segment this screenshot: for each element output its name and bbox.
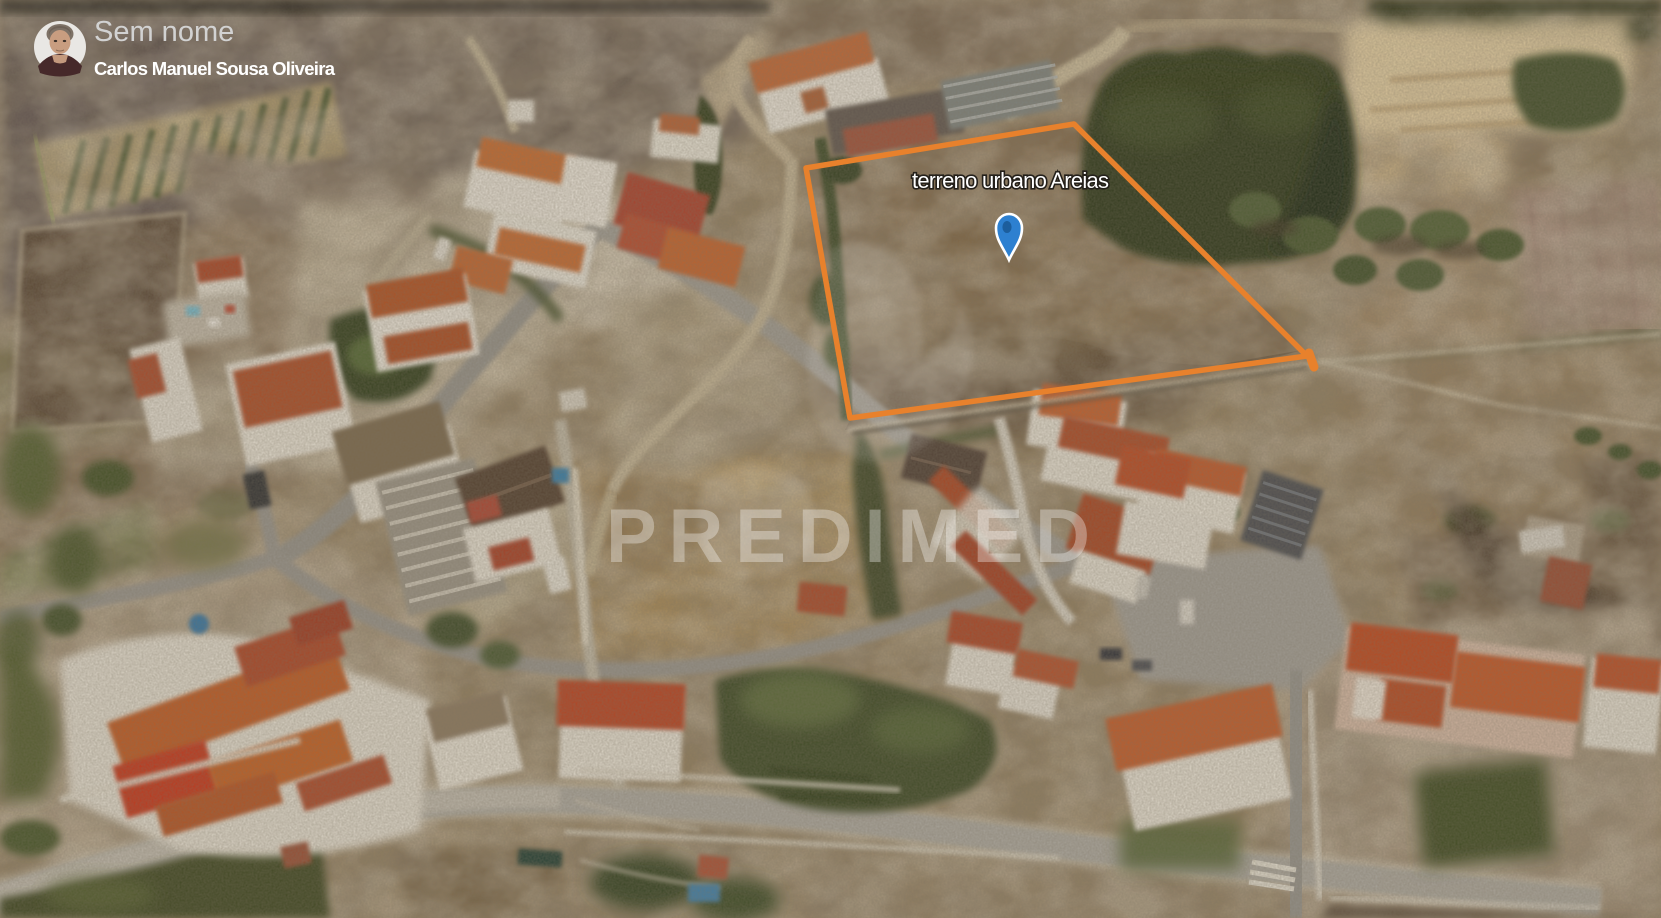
svg-text:Sem nome: Sem nome [94, 16, 234, 48]
svg-text:terreno urbano Areias: terreno urbano Areias [912, 168, 1109, 193]
svg-text:PREDIMED: PREDIMED [606, 494, 1090, 579]
svg-text:Carlos Manuel Sousa Oliveira: Carlos Manuel Sousa Oliveira [94, 58, 336, 79]
